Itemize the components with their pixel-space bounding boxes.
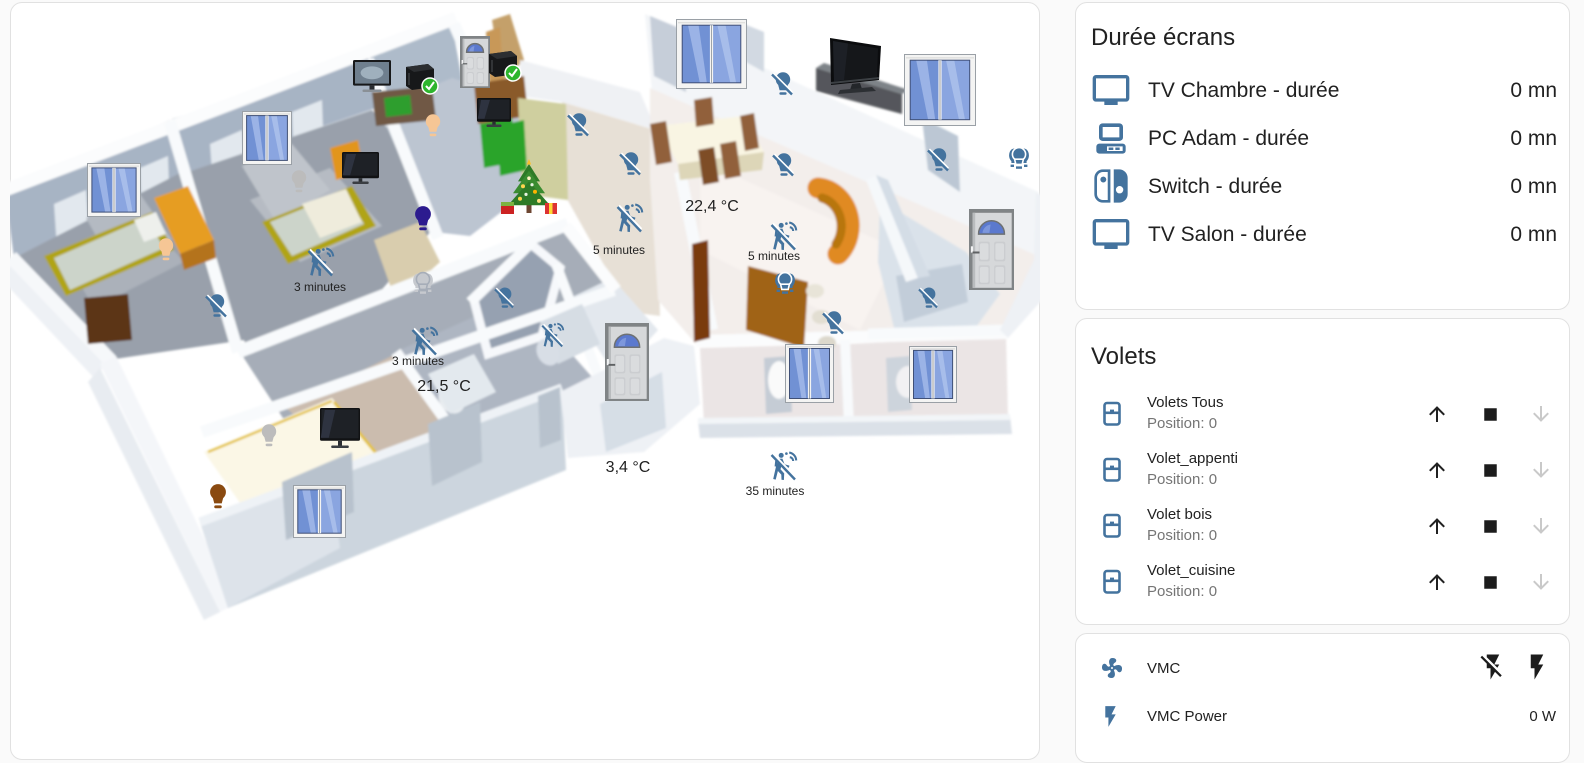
svg-text:5 minutes: 5 minutes <box>593 243 645 257</box>
svg-text:3 minutes: 3 minutes <box>294 280 346 294</box>
svg-text:5 minutes: 5 minutes <box>748 249 800 263</box>
svg-text:35 minutes: 35 minutes <box>746 484 805 498</box>
svg-text:3,4 °C: 3,4 °C <box>606 459 651 476</box>
svg-text:22,4 °C: 22,4 °C <box>685 198 739 215</box>
svg-text:3 minutes: 3 minutes <box>392 354 444 368</box>
svg-text:21,5 °C: 21,5 °C <box>417 378 471 395</box>
